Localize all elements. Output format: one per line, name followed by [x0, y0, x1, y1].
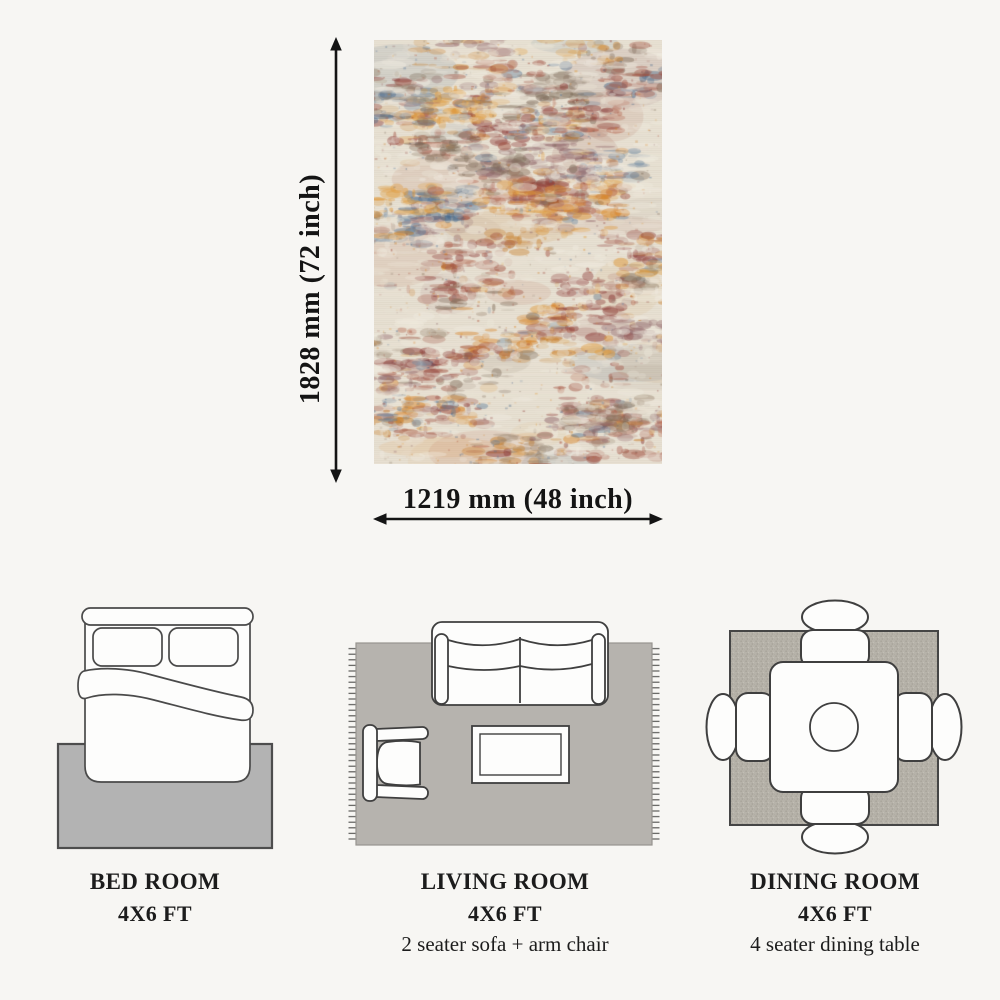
dining-room-size: 4X6 FT: [680, 902, 990, 926]
bedroom-layout-figure: [40, 595, 290, 860]
rug-fringe-right: [652, 645, 660, 843]
arrow-up-icon: [330, 37, 342, 51]
dining-room-caption: DINING ROOM 4X6 FT 4 seater dining table: [680, 869, 990, 957]
table-centerpiece: [810, 703, 858, 751]
dining-room-title: DINING ROOM: [680, 869, 990, 894]
chair-seat-left: [736, 693, 774, 761]
arrow-down-icon: [330, 470, 342, 484]
living-room-layout-figure: [330, 590, 670, 870]
height-dimension-arrow: [326, 36, 346, 484]
bedroom-title: BED ROOM: [0, 869, 310, 894]
rug-fringe-left: [349, 645, 357, 843]
arrow-left-icon: [373, 513, 387, 525]
chair-back-bottom: [802, 821, 868, 854]
sofa-armrest-right: [592, 634, 605, 704]
bedroom-caption: BED ROOM 4X6 FT: [0, 869, 310, 926]
chair-back-right: [929, 694, 962, 760]
chair-back-top: [802, 601, 868, 634]
armchair-arm-bottom: [370, 785, 428, 800]
armchair-arm-top: [370, 727, 428, 742]
living-room-note: 2 seater sofa + arm chair: [350, 933, 660, 956]
bedroom-size: 4X6 FT: [0, 902, 310, 926]
living-room-size: 4X6 FT: [350, 902, 660, 926]
living-room-caption: LIVING ROOM 4X6 FT 2 seater sofa + arm c…: [350, 869, 660, 957]
living-room-top-view-icon: [330, 590, 670, 870]
rug-size-guide-page: 1828 mm (72 inch) 1219 mm (48 inch): [0, 0, 1000, 1000]
chair-seat-right: [894, 693, 932, 761]
bed-top-view-icon: [40, 595, 290, 860]
bed-headboard: [82, 608, 253, 625]
height-dimension-label: 1828 mm (72 inch): [295, 174, 327, 404]
arm-chair: [363, 725, 428, 801]
bed-pillow-right: [169, 628, 238, 666]
bed-pillow-left: [93, 628, 162, 666]
armchair-seat: [377, 741, 420, 786]
dining-set-top-view-icon: [690, 590, 990, 885]
width-dimension-arrow: [372, 509, 664, 529]
rug-product-image: [374, 40, 662, 464]
armchair-back: [363, 725, 377, 801]
arrow-right-icon: [650, 513, 664, 525]
two-seater-sofa: [432, 622, 608, 705]
coffee-table: [472, 726, 569, 783]
living-room-title: LIVING ROOM: [350, 869, 660, 894]
dining-room-layout-figure: [690, 590, 990, 885]
sofa-armrest-left: [435, 634, 448, 704]
dining-room-note: 4 seater dining table: [680, 933, 990, 956]
chair-back-left: [707, 694, 740, 760]
